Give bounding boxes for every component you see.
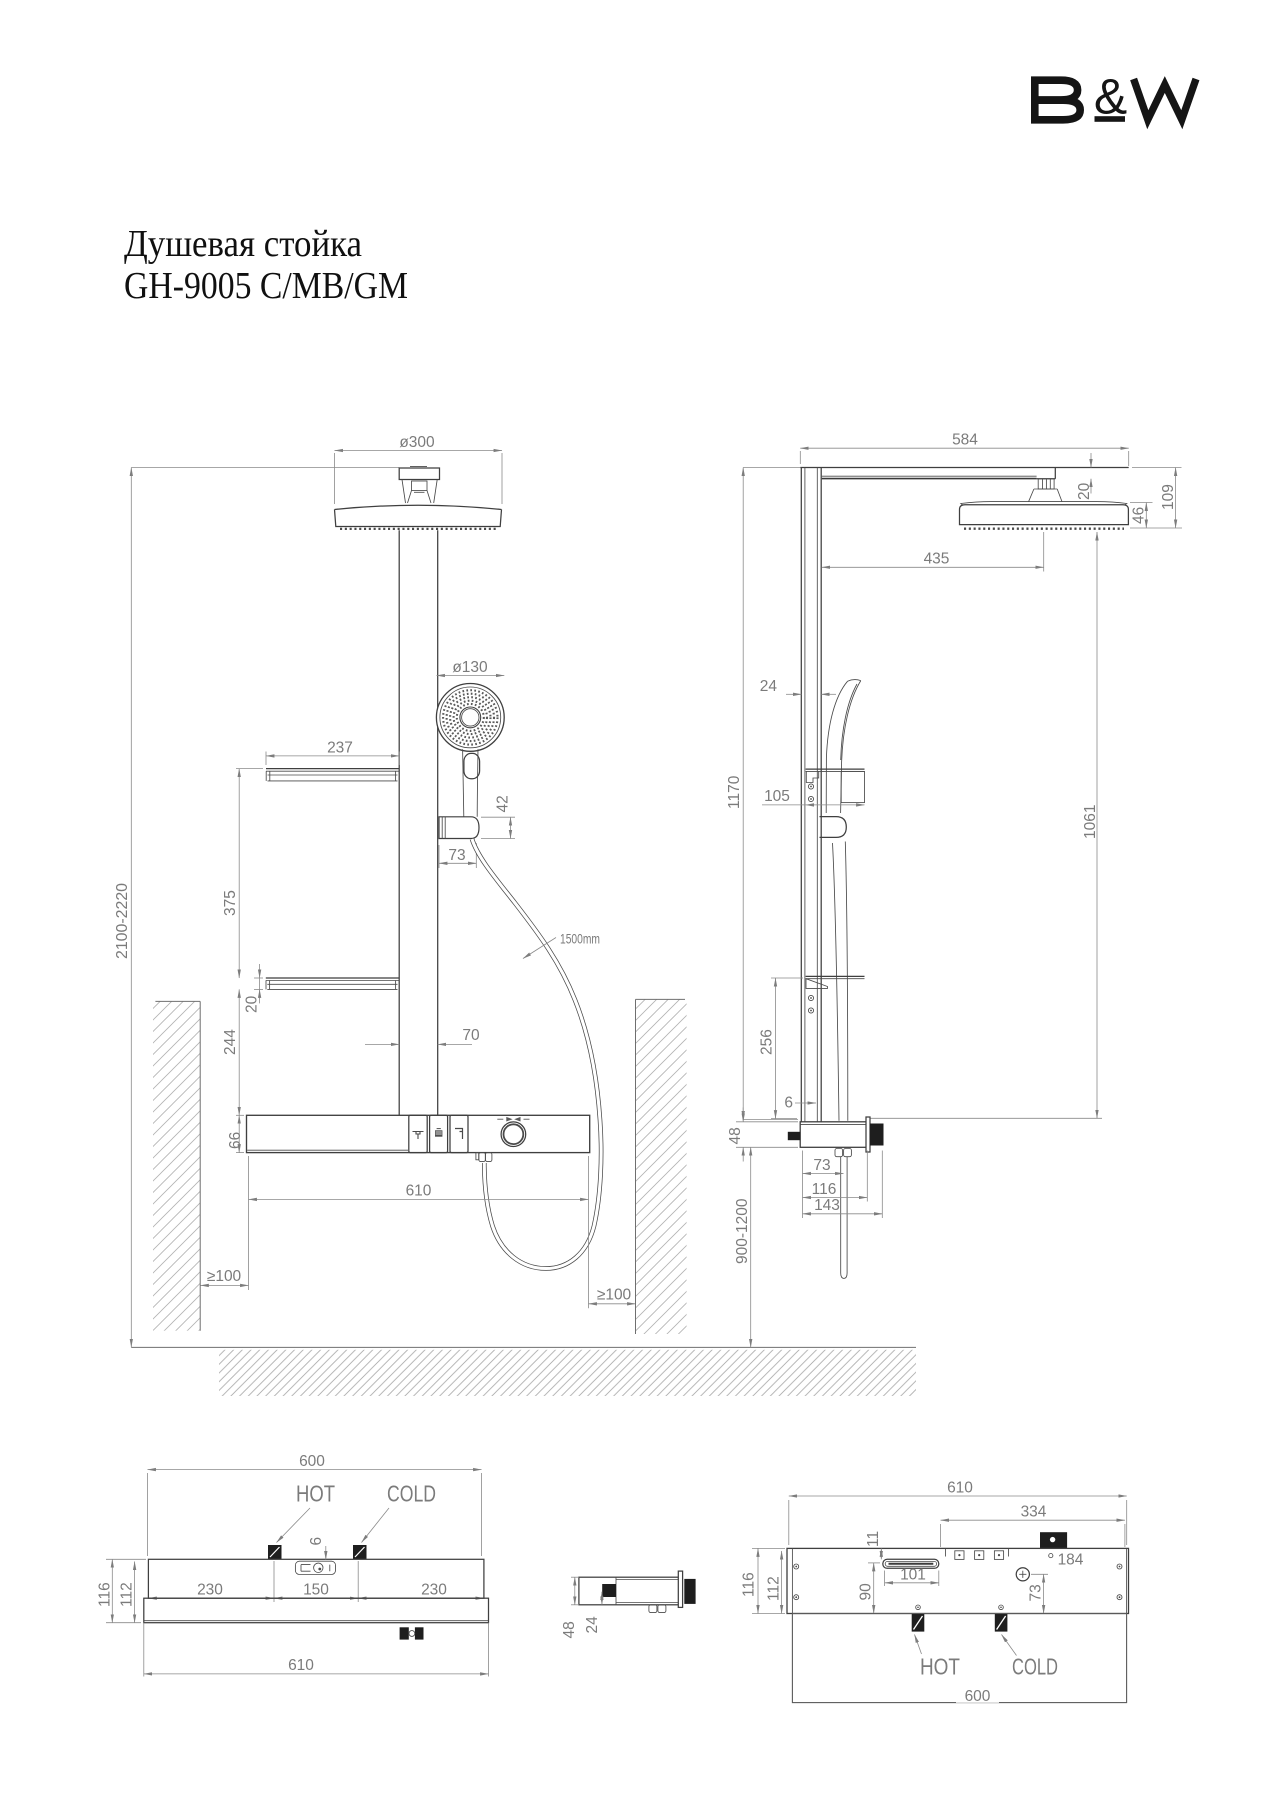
svg-text:2100-2220: 2100-2220 bbox=[114, 883, 131, 959]
svg-text:1500mm: 1500mm bbox=[560, 931, 600, 947]
svg-text:42: 42 bbox=[495, 795, 512, 812]
svg-text:109: 109 bbox=[1160, 484, 1177, 510]
svg-text:20: 20 bbox=[244, 995, 261, 1013]
svg-text:116: 116 bbox=[97, 1582, 114, 1607]
svg-text:256: 256 bbox=[759, 1029, 776, 1055]
svg-text:610: 610 bbox=[947, 1480, 973, 1497]
svg-text:66: 66 bbox=[227, 1132, 244, 1149]
svg-text:237: 237 bbox=[327, 740, 353, 757]
svg-text:435: 435 bbox=[924, 551, 950, 568]
svg-text:≥100: ≥100 bbox=[207, 1268, 242, 1285]
svg-text:584: 584 bbox=[952, 432, 978, 449]
svg-text:Душевая стойка: Душевая стойка bbox=[124, 223, 362, 265]
svg-text:90: 90 bbox=[858, 1583, 875, 1601]
svg-text:48: 48 bbox=[727, 1127, 744, 1144]
svg-text:46: 46 bbox=[1131, 507, 1148, 524]
svg-text:ø130: ø130 bbox=[452, 659, 488, 676]
svg-text:116: 116 bbox=[741, 1572, 758, 1597]
svg-text:244: 244 bbox=[222, 1029, 239, 1055]
svg-text:600: 600 bbox=[965, 1688, 991, 1705]
svg-text:1170: 1170 bbox=[726, 775, 743, 809]
svg-text:73: 73 bbox=[813, 1157, 830, 1174]
svg-text:184: 184 bbox=[1058, 1552, 1084, 1569]
svg-text:334: 334 bbox=[1021, 1504, 1047, 1521]
svg-text:6: 6 bbox=[308, 1537, 325, 1546]
svg-text:143: 143 bbox=[814, 1197, 840, 1214]
svg-text:230: 230 bbox=[421, 1582, 447, 1599]
svg-text:73: 73 bbox=[448, 847, 465, 864]
svg-text:≥100: ≥100 bbox=[597, 1287, 632, 1304]
svg-text:101: 101 bbox=[900, 1567, 926, 1584]
svg-text:HOT: HOT bbox=[296, 1481, 335, 1507]
svg-text:11: 11 bbox=[865, 1531, 882, 1547]
svg-text:610: 610 bbox=[406, 1183, 432, 1200]
svg-text:73: 73 bbox=[1028, 1584, 1045, 1601]
svg-text:COLD: COLD bbox=[1012, 1654, 1058, 1680]
svg-text:COLD: COLD bbox=[387, 1481, 436, 1507]
svg-text:1061: 1061 bbox=[1082, 805, 1099, 839]
svg-text:112: 112 bbox=[119, 1582, 136, 1607]
svg-text:150: 150 bbox=[303, 1582, 329, 1599]
svg-text:230: 230 bbox=[197, 1582, 223, 1599]
svg-text:900-1200: 900-1200 bbox=[734, 1198, 751, 1264]
svg-text:600: 600 bbox=[299, 1453, 325, 1470]
svg-text:105: 105 bbox=[764, 788, 790, 805]
svg-text:48: 48 bbox=[561, 1621, 578, 1638]
svg-text:20: 20 bbox=[1076, 482, 1093, 500]
svg-text:6: 6 bbox=[784, 1095, 793, 1112]
svg-text:ø300: ø300 bbox=[399, 434, 435, 451]
svg-text:116: 116 bbox=[812, 1181, 837, 1198]
svg-text:GH-9005 C/MB/GM: GH-9005 C/MB/GM bbox=[124, 265, 408, 307]
svg-text:70: 70 bbox=[462, 1027, 480, 1044]
svg-text:610: 610 bbox=[288, 1657, 314, 1674]
svg-text:112: 112 bbox=[766, 1576, 783, 1601]
svg-text:HOT: HOT bbox=[920, 1654, 960, 1680]
svg-text:24: 24 bbox=[584, 1616, 601, 1634]
svg-text:&: & bbox=[1094, 69, 1127, 125]
svg-text:375: 375 bbox=[222, 890, 239, 916]
svg-text:24: 24 bbox=[760, 678, 778, 695]
